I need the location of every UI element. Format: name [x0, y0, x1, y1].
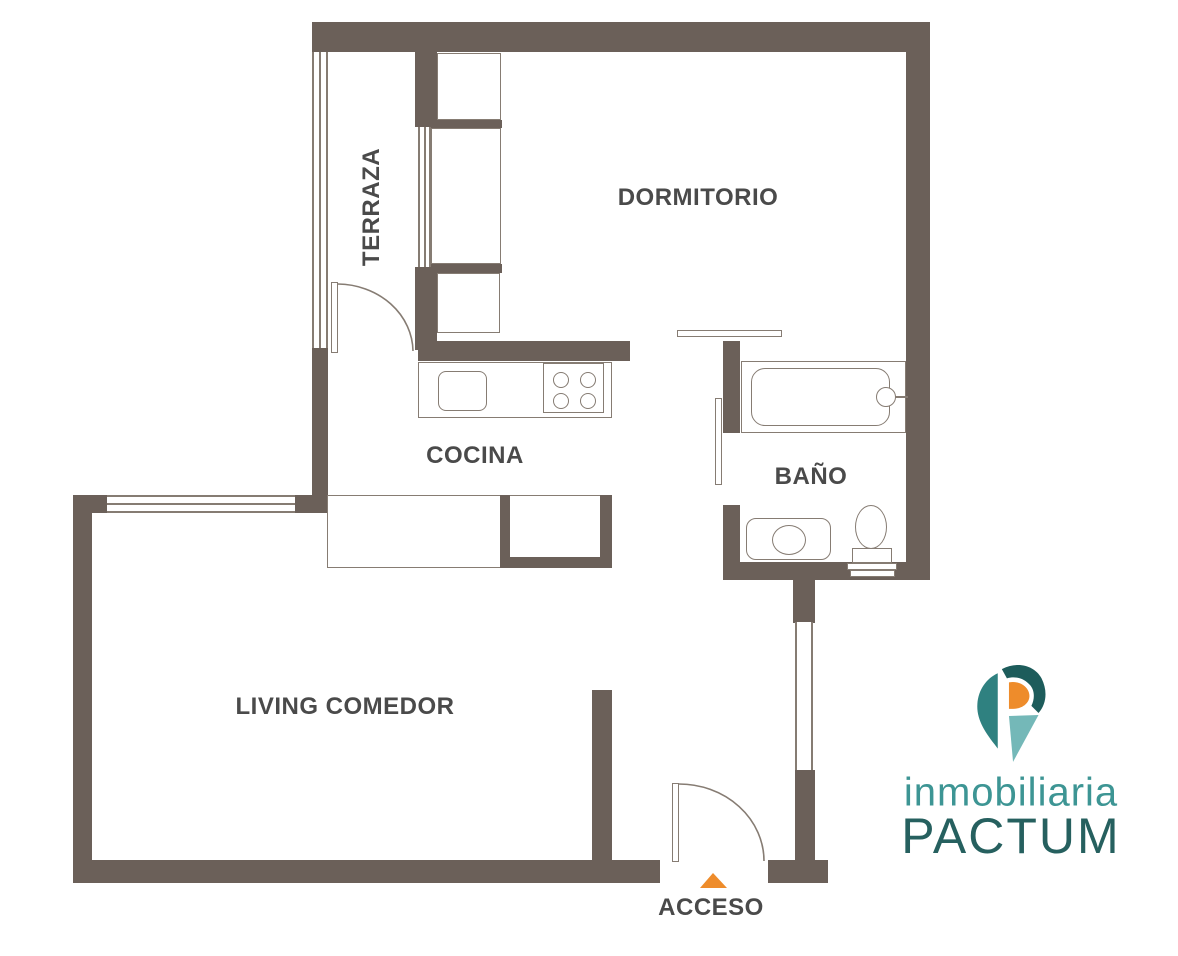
- entry-door-arc: [679, 784, 764, 861]
- terraza-door-arc: [338, 284, 413, 351]
- logo-title: PACTUM: [901, 807, 1120, 865]
- room-label-bano: BAÑO: [775, 463, 848, 491]
- map-pin-logo-icon: [975, 661, 1047, 769]
- floorplan-canvas: TERRAZA DORMITORIO COCINA BAÑO LIVING CO…: [0, 0, 1178, 956]
- room-label-cocina: COCINA: [426, 442, 524, 470]
- logo-block: inmobiliaria PACTUM: [860, 650, 1170, 880]
- room-label-living: LIVING COMEDOR: [235, 693, 454, 721]
- room-label-terraza: TERRAZA: [358, 148, 386, 266]
- access-arrow-icon: [700, 873, 727, 888]
- room-label-dormitorio: DORMITORIO: [618, 184, 779, 212]
- room-label-acceso: ACCESO: [658, 894, 764, 922]
